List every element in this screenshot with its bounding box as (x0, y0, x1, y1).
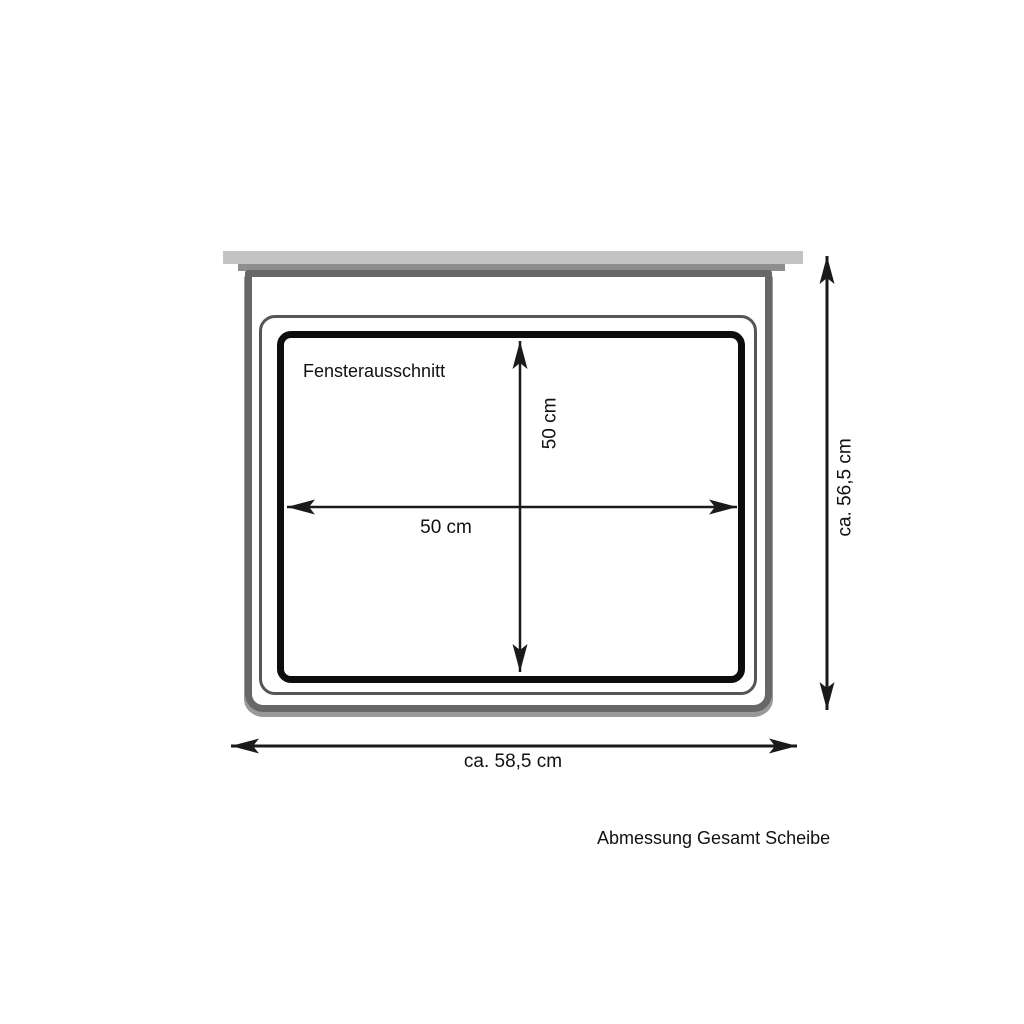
total-height-label: ca. 56,5 cm (835, 417, 858, 557)
cutout-label: Fensterausschnitt (303, 361, 445, 383)
inner-width-label: 50 cm (386, 517, 506, 540)
caption: Abmessung Gesamt Scheibe (597, 828, 830, 850)
window-cutout-frame (277, 331, 745, 683)
top-rail-light-bar (223, 251, 803, 264)
total-width-label: ca. 58,5 cm (433, 751, 593, 774)
dimension-diagram: Fensterausschnitt 50 cm 50 cm ca. 56,5 c… (0, 0, 1024, 1024)
inner-height-label: 50 cm (540, 363, 563, 483)
